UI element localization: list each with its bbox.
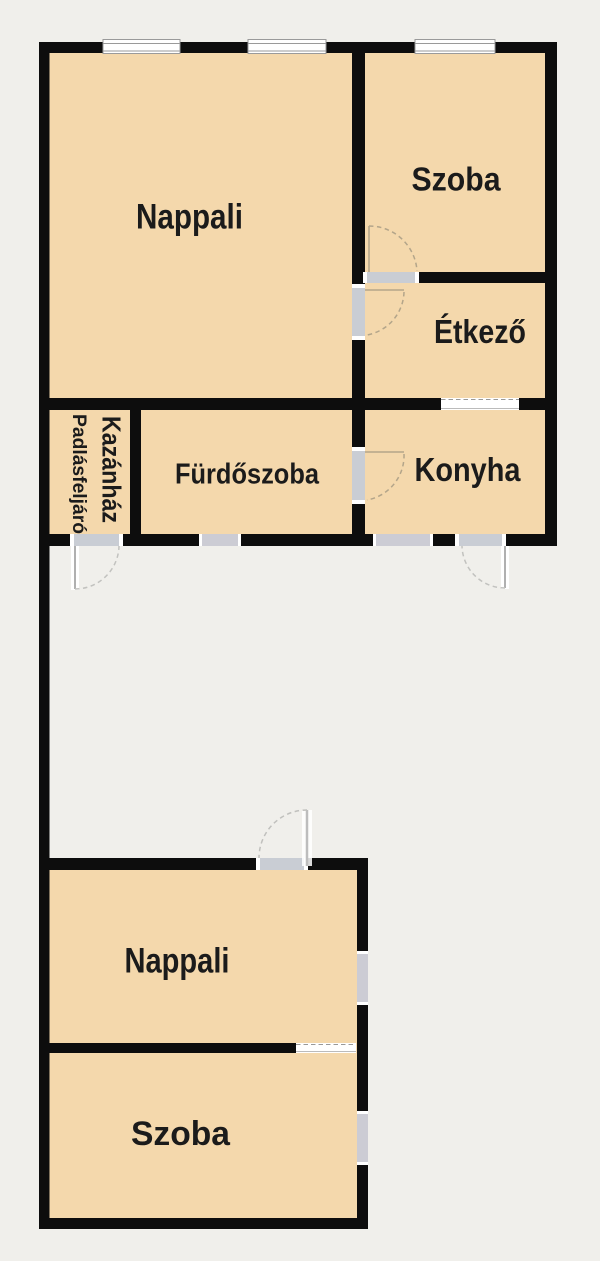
svg-text:Szoba: Szoba — [412, 162, 501, 199]
svg-text:Szoba: Szoba — [131, 1115, 231, 1153]
svg-text:Konyha: Konyha — [415, 452, 521, 489]
svg-text:Nappali: Nappali — [136, 197, 243, 237]
svg-text:Nappali: Nappali — [125, 941, 230, 981]
svg-text:Kazánház: Kazánház — [97, 416, 127, 523]
svg-text:Fürdőszoba: Fürdőszoba — [175, 459, 320, 491]
svg-text:Padlásfeljáró: Padlásfeljáró — [68, 414, 90, 534]
svg-text:Étkező: Étkező — [434, 313, 526, 350]
